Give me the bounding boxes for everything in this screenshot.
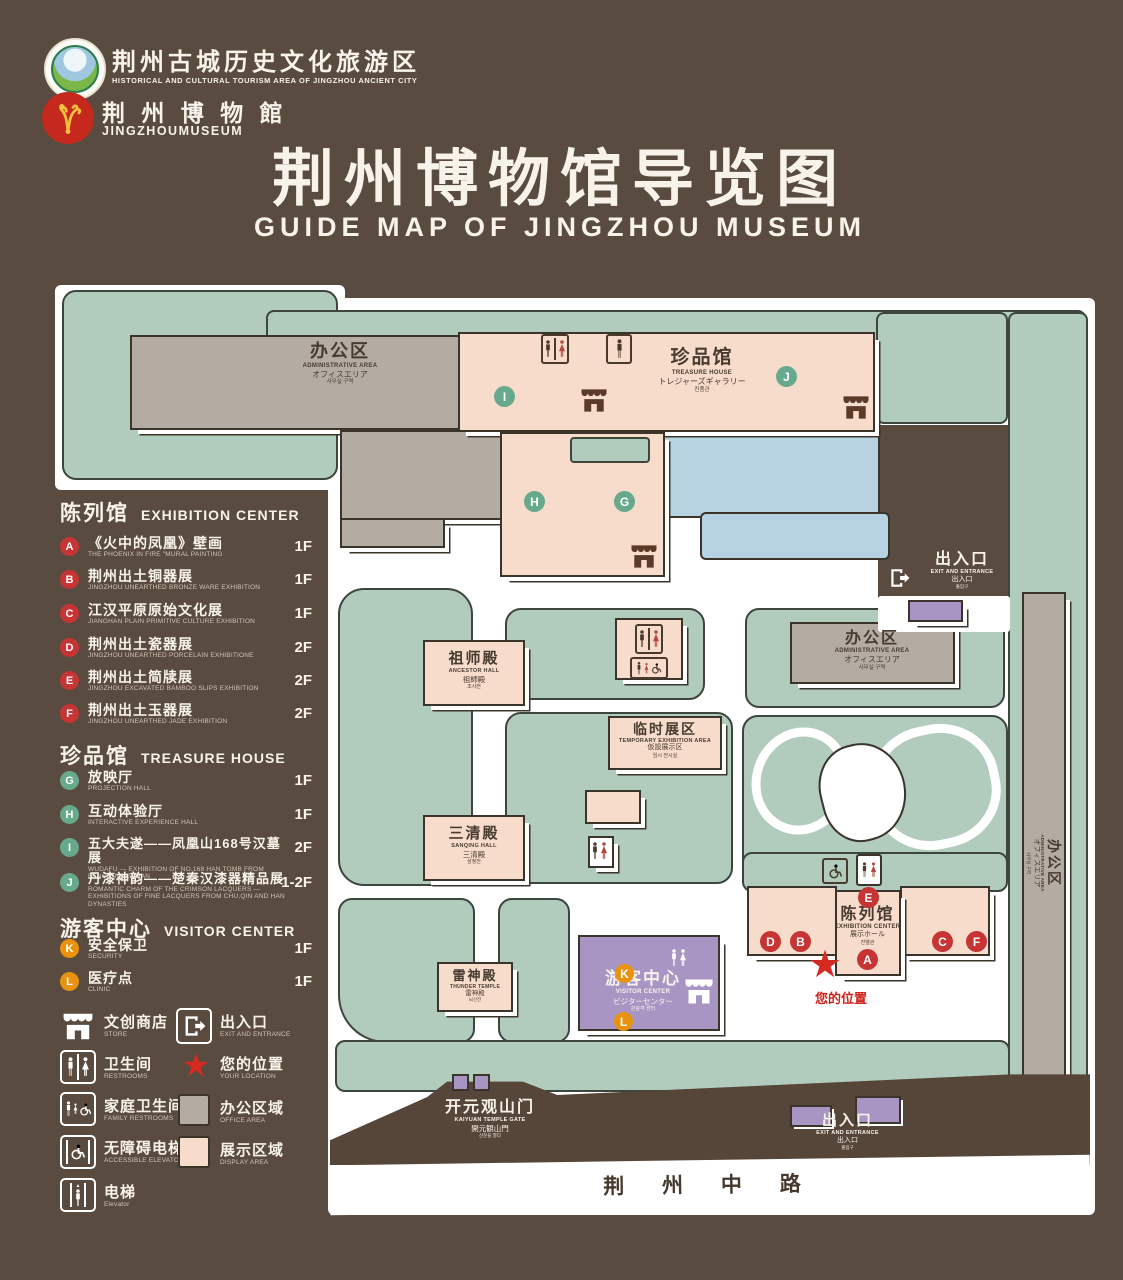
gate-pillar-west [452, 1074, 469, 1091]
south-exit-label: 出入口 EXIT AND ENTRANCE 出入口 출입구 [790, 1112, 905, 1150]
admin-strip-label: 办公区 ADMINISTRATIVE AREA オフィスエリア 사무실 구역 [1026, 798, 1062, 928]
legend-elevator-label: 电梯Elevator [104, 1184, 136, 1209]
treasure-restroom-icon [541, 334, 569, 364]
small-restroom-icon [591, 840, 608, 862]
treasure-pond-upper [645, 420, 880, 518]
legend-restrooms-icon [60, 1050, 96, 1084]
legend-badge-b: B [60, 570, 79, 589]
legend-family-restrooms-icon [60, 1092, 96, 1126]
page-title: 荆州博物馆导览图 [160, 128, 960, 218]
ne-exit-door-icon [888, 566, 910, 590]
road-white-band: 荆 州 中 路 [330, 1155, 1091, 1216]
marker-k: K [615, 964, 634, 983]
legend-badge-i: I [60, 838, 79, 857]
legend-badge-f: F [60, 704, 79, 723]
legend-exit-icon [176, 1008, 212, 1044]
treasure-terrace [570, 437, 650, 463]
visitor-restroom-icon [670, 948, 687, 968]
temp-exhibition-store-annex [585, 790, 641, 824]
treasure-store-icon-east [842, 395, 870, 420]
ne-exit-label: 出入口 EXIT AND ENTRANCE 出入口 출입구 [912, 550, 1012, 590]
legend-location-star-icon: ★ [178, 1049, 214, 1081]
legend-display-area-label: 展示区域DISPLAY AREA [220, 1142, 284, 1167]
legend-badge-g: G [60, 771, 79, 790]
temporary-exhibition-label: 临时展区 TEMPORARY EXHIBITION AREA 仮設展示区 임시 … [598, 721, 732, 759]
ne-exit-building [908, 600, 963, 622]
admin-east-label: 办公区 ADMINISTRATIVE AREA オフィスエリア 사무실 구역 [782, 629, 962, 672]
legend-accessible-elevator-icon [60, 1135, 96, 1169]
sanqing-hall-label: 三清殿 SANQING HALL 三清殿 삼청전 [412, 825, 536, 865]
treasure-elevator-icon [606, 334, 632, 364]
legend-badge-h: H [60, 805, 79, 824]
gate-pillar-east [473, 1074, 490, 1091]
your-location-star-icon: ★ [803, 946, 847, 984]
marker-l: L [614, 1012, 633, 1031]
mid-restroom-icon [635, 624, 663, 654]
gate-label: 开元观山门 KAIYUAN TEMPLE GATE 開元観山門 산문을 열다 [400, 1098, 580, 1138]
marker-a: A [857, 949, 878, 970]
tourism-area-title-cn: 荆州古城历史文化旅游区 [112, 42, 420, 77]
legend-office-area-swatch [178, 1094, 210, 1126]
legend-exit-label: 出入口EXIT AND ENTRANCE [220, 1014, 290, 1039]
legend-badge-a: A [60, 537, 79, 556]
guide-map-poster: 荆州古城历史文化旅游区 HISTORICAL AND CULTURAL TOUR… [0, 0, 1123, 1280]
legend-badge-d: D [60, 638, 79, 657]
marker-g: G [614, 491, 635, 512]
marker-i: I [494, 386, 515, 407]
legend-location-label: 您的位置YOUR LOCATION [220, 1056, 284, 1081]
legend-badge-k: K [60, 939, 79, 958]
road-name-label: 荆 州 中 路 [330, 1168, 1090, 1204]
legend-display-area-swatch [178, 1136, 210, 1168]
legend-badge-c: C [60, 604, 79, 623]
legend-restrooms-label: 卫生间RESTROOMS [104, 1056, 152, 1081]
admin-nw-building-tail [340, 518, 445, 548]
legend-section-treasure: 珍品馆TREASURE HOUSE [60, 740, 286, 770]
ancestor-hall-label: 祖师殿 ANCESTOR HALL 祖師殿 조사전 [412, 650, 536, 690]
page-subtitle: GUIDE MAP OF JINGZHOU MUSEUM [160, 212, 960, 243]
legend-store-label: 文创商店STORE [104, 1014, 168, 1039]
treasure-store-icon-west [580, 388, 608, 413]
treasure-pond-lower [700, 512, 890, 560]
visitor-store-icon [684, 978, 714, 1005]
tourism-area-emblem-inner [51, 45, 99, 93]
marker-f: F [966, 931, 987, 952]
museum-title-cn: 荆 州 博 物 館 [102, 94, 288, 128]
your-location-label: 您的位置 [796, 988, 886, 1007]
legend-badge-e: E [60, 671, 79, 690]
park-ne-block [876, 312, 1008, 424]
phoenix-antler-icon [51, 101, 85, 135]
admin-nw-label: 办公区 ADMINISTRATIVE AREA オフィスエリア 사무실 구역 [245, 341, 435, 386]
legend-badge-l: L [60, 972, 79, 991]
legend-store-icon [62, 1012, 94, 1041]
marker-e: E [858, 887, 879, 908]
marker-h: H [524, 491, 545, 512]
exhibition-accessible-elevator-icon [822, 858, 848, 884]
exhibition-restroom-icon [856, 854, 882, 886]
legend-section-exhibition: 陈列馆EXHIBITION CENTER [60, 497, 300, 527]
legend-badge-j: J [60, 873, 79, 892]
treasure-store-icon-south [630, 544, 658, 569]
mid-family-restroom-icon [630, 657, 668, 679]
tourism-area-title-en: HISTORICAL AND CULTURAL TOURISM AREA OF … [112, 76, 417, 85]
thunder-temple-label: 雷神殿 THUNDER TEMPLE 雷神殿 뇌신전 [425, 968, 525, 1003]
marker-c: C [932, 931, 953, 952]
admin-nw-building-south [340, 430, 510, 520]
marker-d: D [760, 931, 781, 952]
exhibition-center-label: 陈列馆 EXHIBITION CENTER 展示ホール 진열관 [800, 905, 935, 946]
legend-office-area-label: 办公区域OFFICE AREA [220, 1100, 284, 1125]
legend-elevator-icon: ▲ [60, 1178, 96, 1212]
marker-j: J [776, 366, 797, 387]
museum-logo [42, 92, 94, 144]
treasure-house-label: 珍品馆 TREASURE HOUSE トレジャーズギャラリー 진품관 [612, 347, 792, 393]
legend-family-restrooms-label: 家庭卫生间FAMILY RESTROOMS [104, 1098, 184, 1123]
legend-accessible-elevator-label: 无障碍电梯ACCESSIBLE ELEVATOR [104, 1140, 184, 1165]
